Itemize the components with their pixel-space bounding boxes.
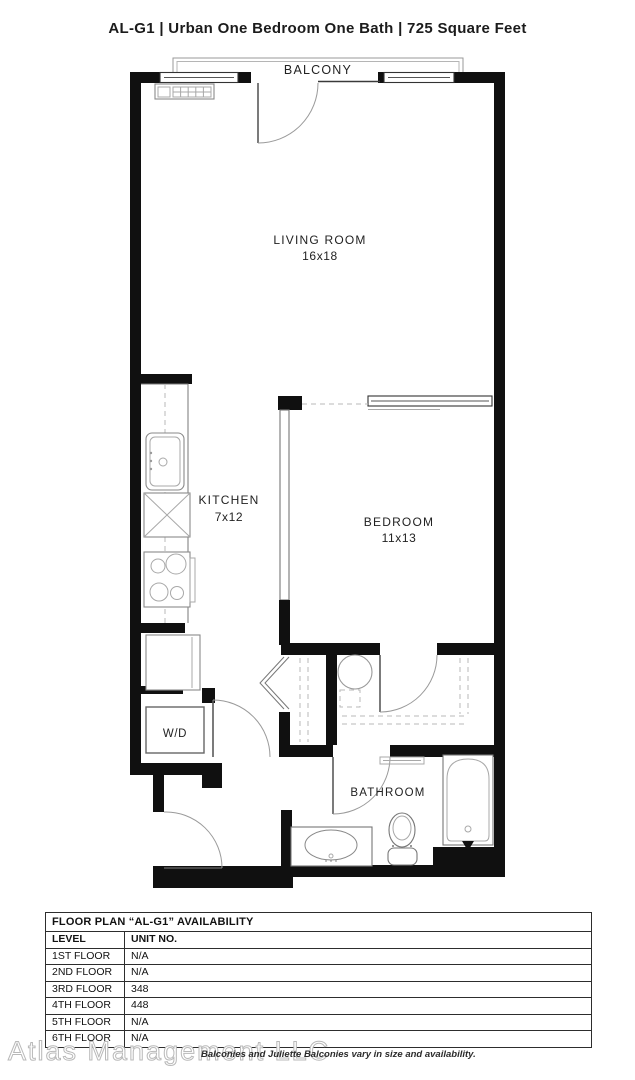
bathroom-shelf <box>380 757 424 764</box>
bedroom-dims: 11x13 <box>382 531 417 545</box>
balcony-label: BALCONY <box>284 63 352 77</box>
water-heater <box>338 655 372 689</box>
window-living-left <box>160 73 238 83</box>
unit-cell: N/A <box>125 1014 592 1031</box>
living-room-label: LIVING ROOM <box>273 233 366 247</box>
bathtub <box>443 755 493 851</box>
level-cell: 5TH FLOOR <box>46 1014 125 1031</box>
bathroom-door <box>333 757 390 814</box>
balcony-disclaimer: Balconies and Juliette Balconies vary in… <box>201 1049 476 1060</box>
unit-cell: N/A <box>125 965 592 982</box>
bedroom-label: BEDROOM <box>364 515 434 529</box>
closet-door <box>380 655 437 712</box>
entry-door <box>164 812 222 868</box>
level-cell: 3RD FLOOR <box>46 981 125 998</box>
availability-table-header-row: LEVEL UNIT NO. <box>46 932 592 949</box>
wd-door <box>213 700 270 757</box>
table-row: 1ST FLOOR N/A <box>46 948 592 965</box>
kitchen-sink <box>146 433 184 490</box>
stove <box>144 552 195 607</box>
unit-cell: 448 <box>125 998 592 1015</box>
closet-shelving <box>300 658 468 742</box>
column-header-unit: UNIT NO. <box>125 932 592 949</box>
refrigerator <box>146 635 200 690</box>
table-row: 3RD FLOOR 348 <box>46 981 592 998</box>
table-row: 4TH FLOOR 448 <box>46 998 592 1015</box>
vanity-sink <box>291 827 372 866</box>
availability-table-title: FLOOR PLAN “AL-G1” AVAILABILITY <box>46 913 592 932</box>
availability-table: FLOOR PLAN “AL-G1” AVAILABILITY LEVEL UN… <box>45 912 592 1048</box>
wd-label: W/D <box>163 728 187 740</box>
level-cell: 4TH FLOOR <box>46 998 125 1015</box>
unit-cell: 348 <box>125 981 592 998</box>
window-living-right <box>384 73 454 83</box>
toilet <box>388 813 417 865</box>
column-header-level: LEVEL <box>46 932 125 949</box>
floor-plan: BALCONY LIVING ROOM 16x18 KITCHEN 7x12 B… <box>0 0 635 905</box>
living-room-dims: 16x18 <box>302 249 338 263</box>
kitchen-label: KITCHEN <box>198 493 259 507</box>
bathroom-label: BATHROOM <box>350 787 425 799</box>
heater-unit <box>155 84 214 99</box>
level-cell: 2ND FLOOR <box>46 965 125 982</box>
dishwasher <box>144 493 190 537</box>
table-row: 2ND FLOOR N/A <box>46 965 592 982</box>
table-row: 5TH FLOOR N/A <box>46 1014 592 1031</box>
bifold-closet-door <box>260 657 289 709</box>
kitchen-dims: 7x12 <box>215 510 243 524</box>
unit-cell: N/A <box>125 948 592 965</box>
availability-table-title-row: FLOOR PLAN “AL-G1” AVAILABILITY <box>46 913 592 932</box>
bedroom-sliding-door <box>302 396 492 410</box>
level-cell: 1ST FLOOR <box>46 948 125 965</box>
balcony-door <box>258 83 318 143</box>
